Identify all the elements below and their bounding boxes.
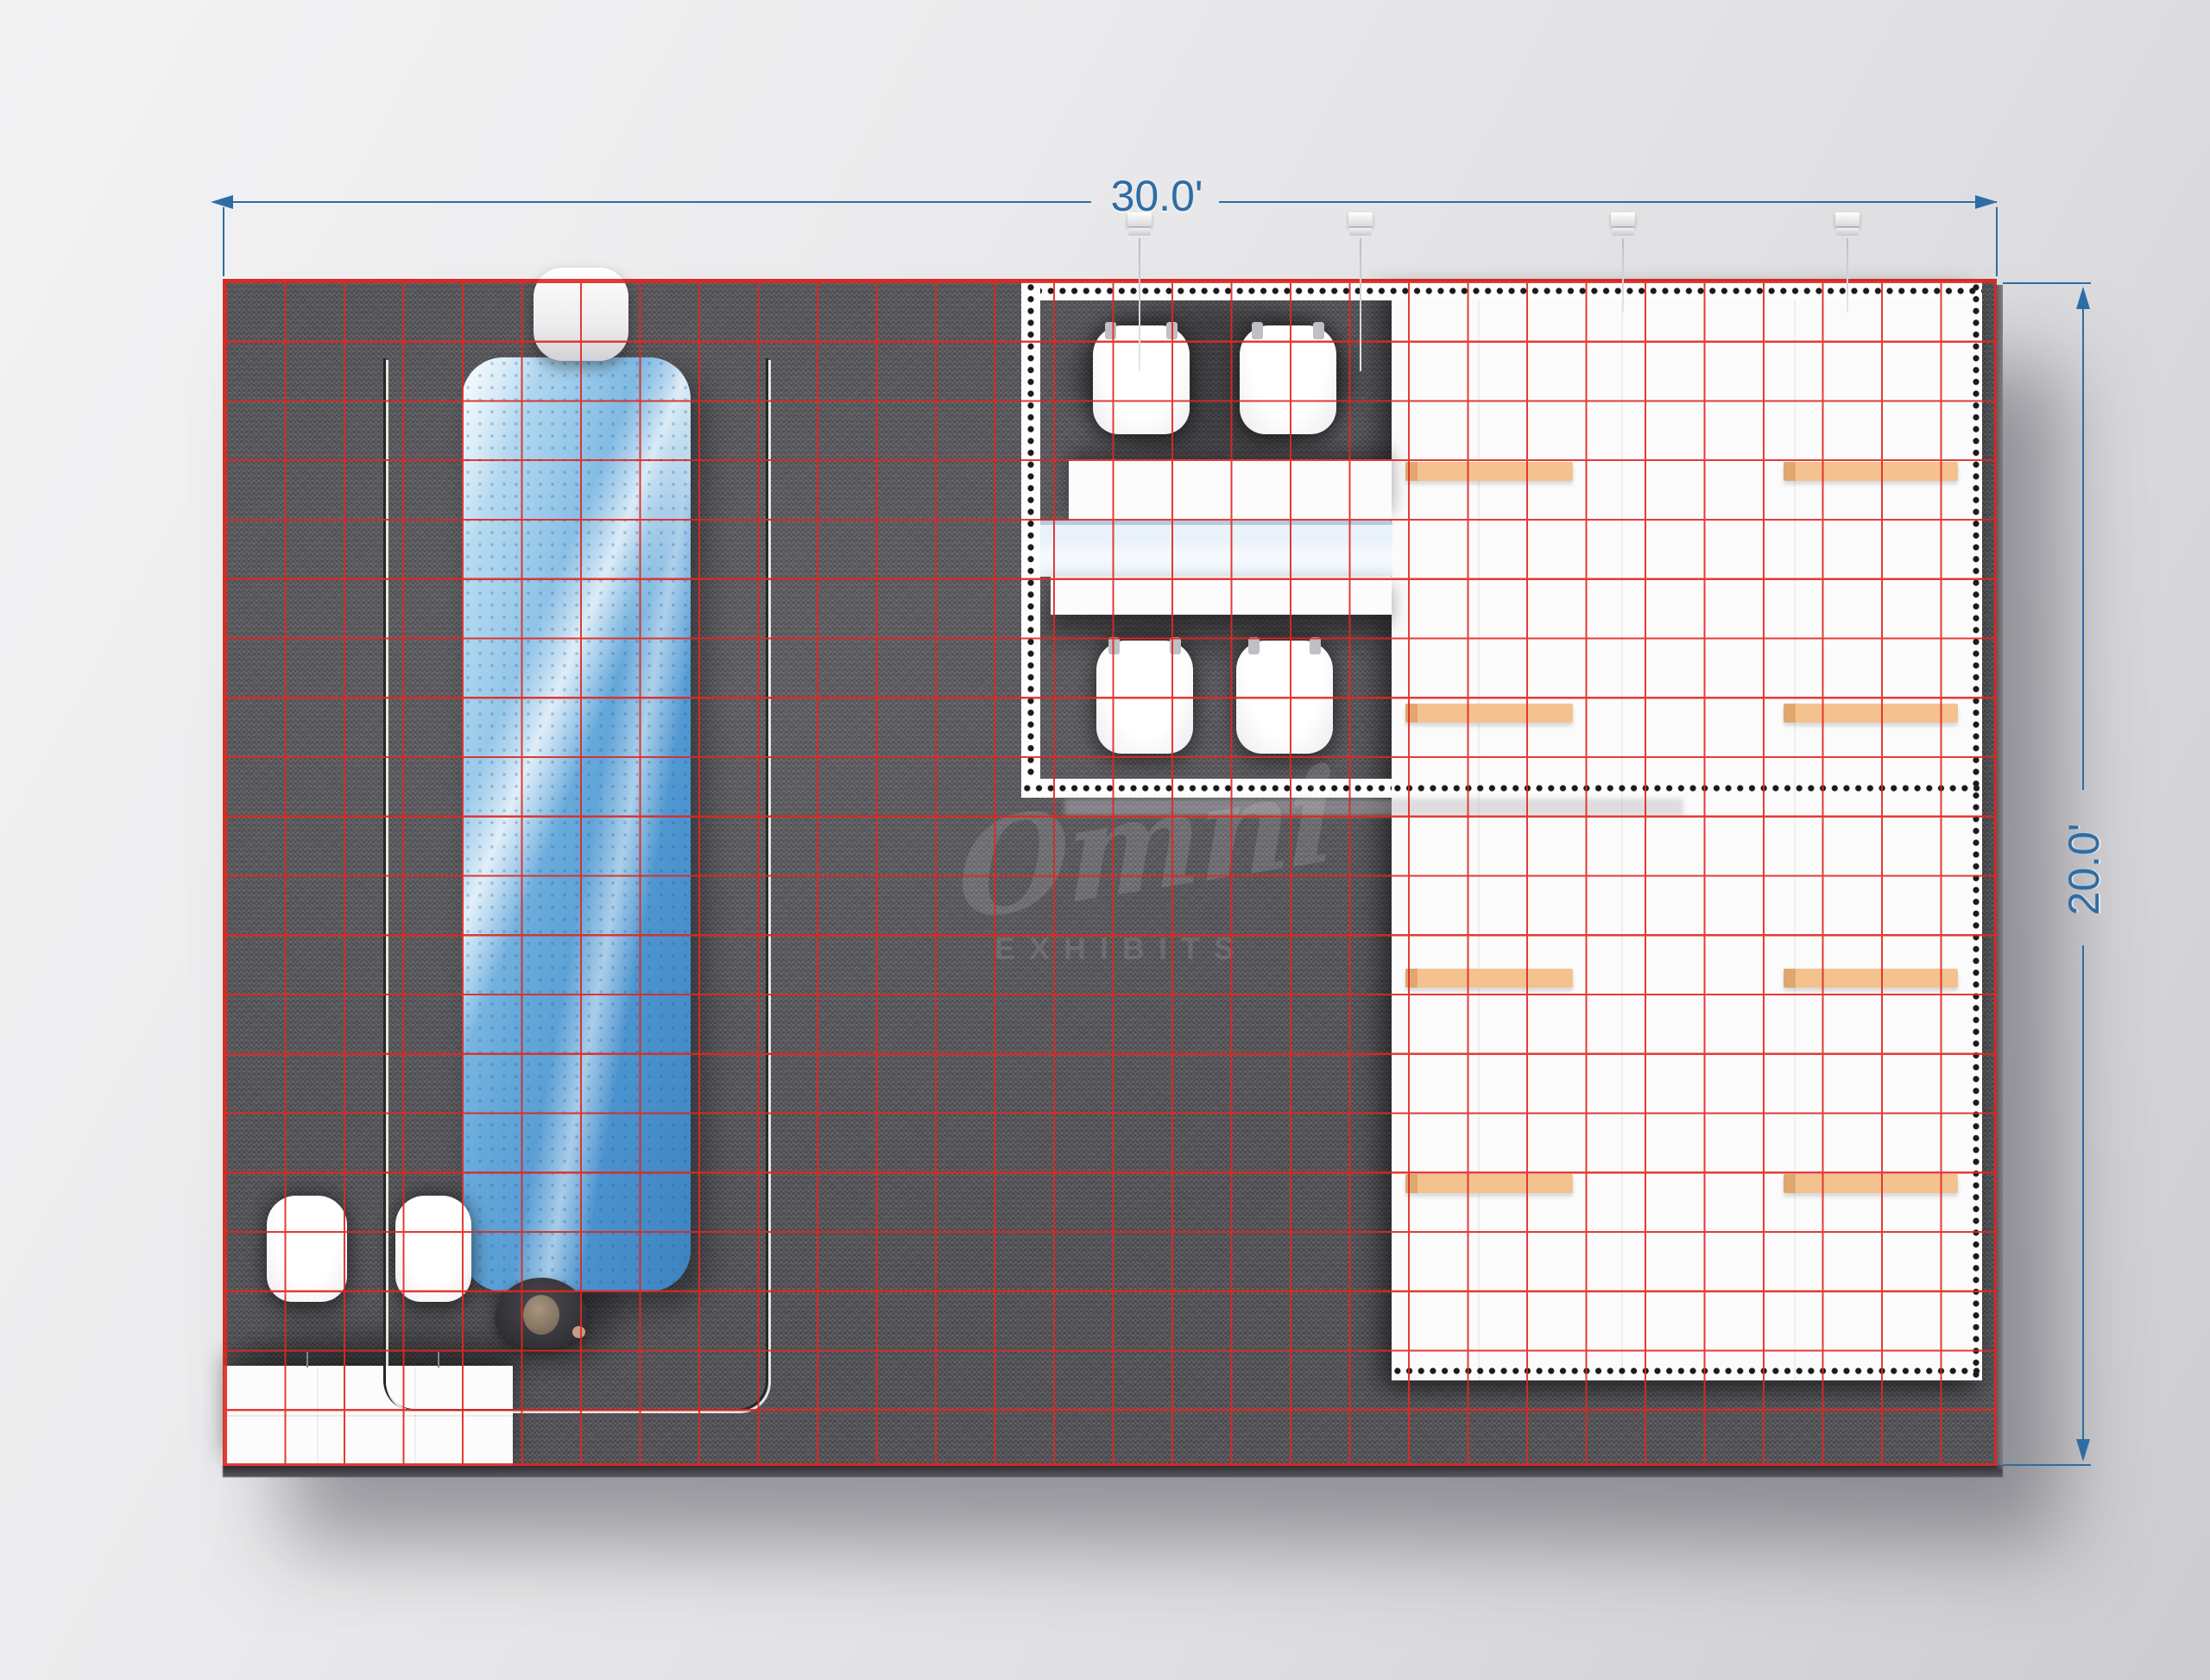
dotted-strip-top [1021,281,1982,300]
counter-seam [224,1415,513,1417]
booth-bottom-edge [223,1465,2003,1477]
dotted-strip-right [1967,281,1986,1380]
shelf [1405,1174,1573,1193]
witness-line-top-right [1996,207,1998,276]
hanging-wire [1139,238,1140,371]
dim-arrow-down [2076,1439,2090,1462]
witness-line-right-bottom [2003,1464,2091,1466]
tower-cap [534,268,628,361]
chair [1236,641,1333,754]
booth-floorplan-render: Omni EXHIBITS 30.0' 20.0' [0,0,2210,1680]
shelf [1784,462,1958,481]
floor-rail-highlight [386,360,771,1413]
conference-table-top [1069,459,1392,521]
hanging-tag [1348,212,1373,226]
shelf [1784,969,1958,988]
hanging-wire [1847,238,1848,313]
chair [267,1196,347,1302]
hanging-wire [1622,238,1624,313]
watermark-subtitle: EXHIBITS [994,931,1248,967]
person-top-view [495,1278,588,1348]
dotted-strip-bottom [1392,1361,1982,1380]
dim-arrow-up [2076,287,2090,309]
counter-seam [317,1366,319,1466]
chair [1240,325,1336,434]
dim-line-top-right-segment [1219,201,1997,203]
dotted-strip-left [1021,281,1040,796]
dotted-strip-divider [1392,779,1982,798]
dim-line-right-upper-segment [2082,306,2084,790]
shelf [1784,1174,1958,1193]
chair [1096,641,1193,754]
width-dimension-label: 30.0' [1081,171,1233,221]
white-raised-floor [1392,283,1982,1380]
hanging-wire [1360,238,1361,371]
booth-right-edge [1996,285,2003,1469]
witness-line-top-left [223,207,224,276]
floor-panel-seam [1478,283,1480,1380]
chair [1093,325,1190,434]
floor-panel-seam [1621,283,1623,1380]
dim-arrow-right [1975,195,1998,209]
conference-table-bottom [1051,577,1392,615]
floor-panel-seam [1794,283,1796,1380]
dim-line-right-lower-segment [2082,945,2084,1442]
person-head [523,1295,559,1335]
shelf [1405,704,1573,723]
shelf [1405,462,1573,481]
conference-table-glass-inlay [1021,521,1392,577]
dim-arrow-left [211,195,233,209]
witness-line-right-top [2003,282,2091,284]
hanging-tag [1127,212,1152,226]
shelf [1405,969,1573,988]
person-hand [572,1326,585,1338]
depth-dimension-label: 20.0' [2059,793,2109,945]
counter-stub [306,1352,308,1367]
dim-line-top-left-segment [224,201,1091,203]
hanging-tag [1611,212,1635,226]
shelf [1784,704,1958,723]
hanging-tag [1835,212,1860,226]
